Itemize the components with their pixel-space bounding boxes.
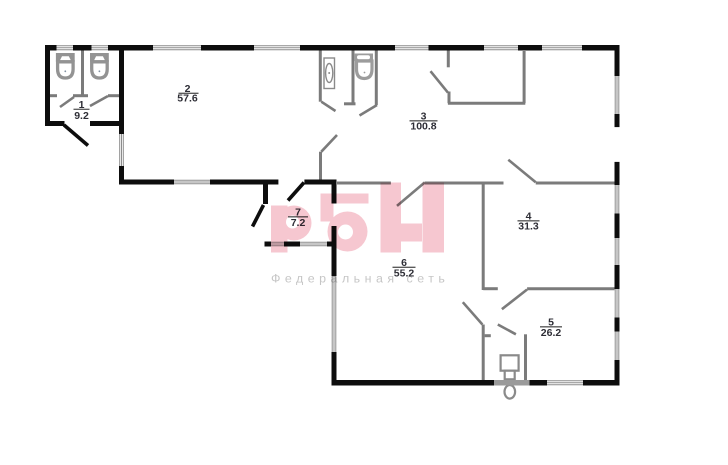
svg-text:Федеральная сеть: Федеральная сеть xyxy=(271,272,449,286)
svg-text:26.2: 26.2 xyxy=(541,327,562,339)
svg-text:31.3: 31.3 xyxy=(518,221,539,233)
svg-text:9.2: 9.2 xyxy=(74,110,89,122)
svg-text:100.8: 100.8 xyxy=(410,121,436,133)
svg-text:57.6: 57.6 xyxy=(177,93,198,105)
